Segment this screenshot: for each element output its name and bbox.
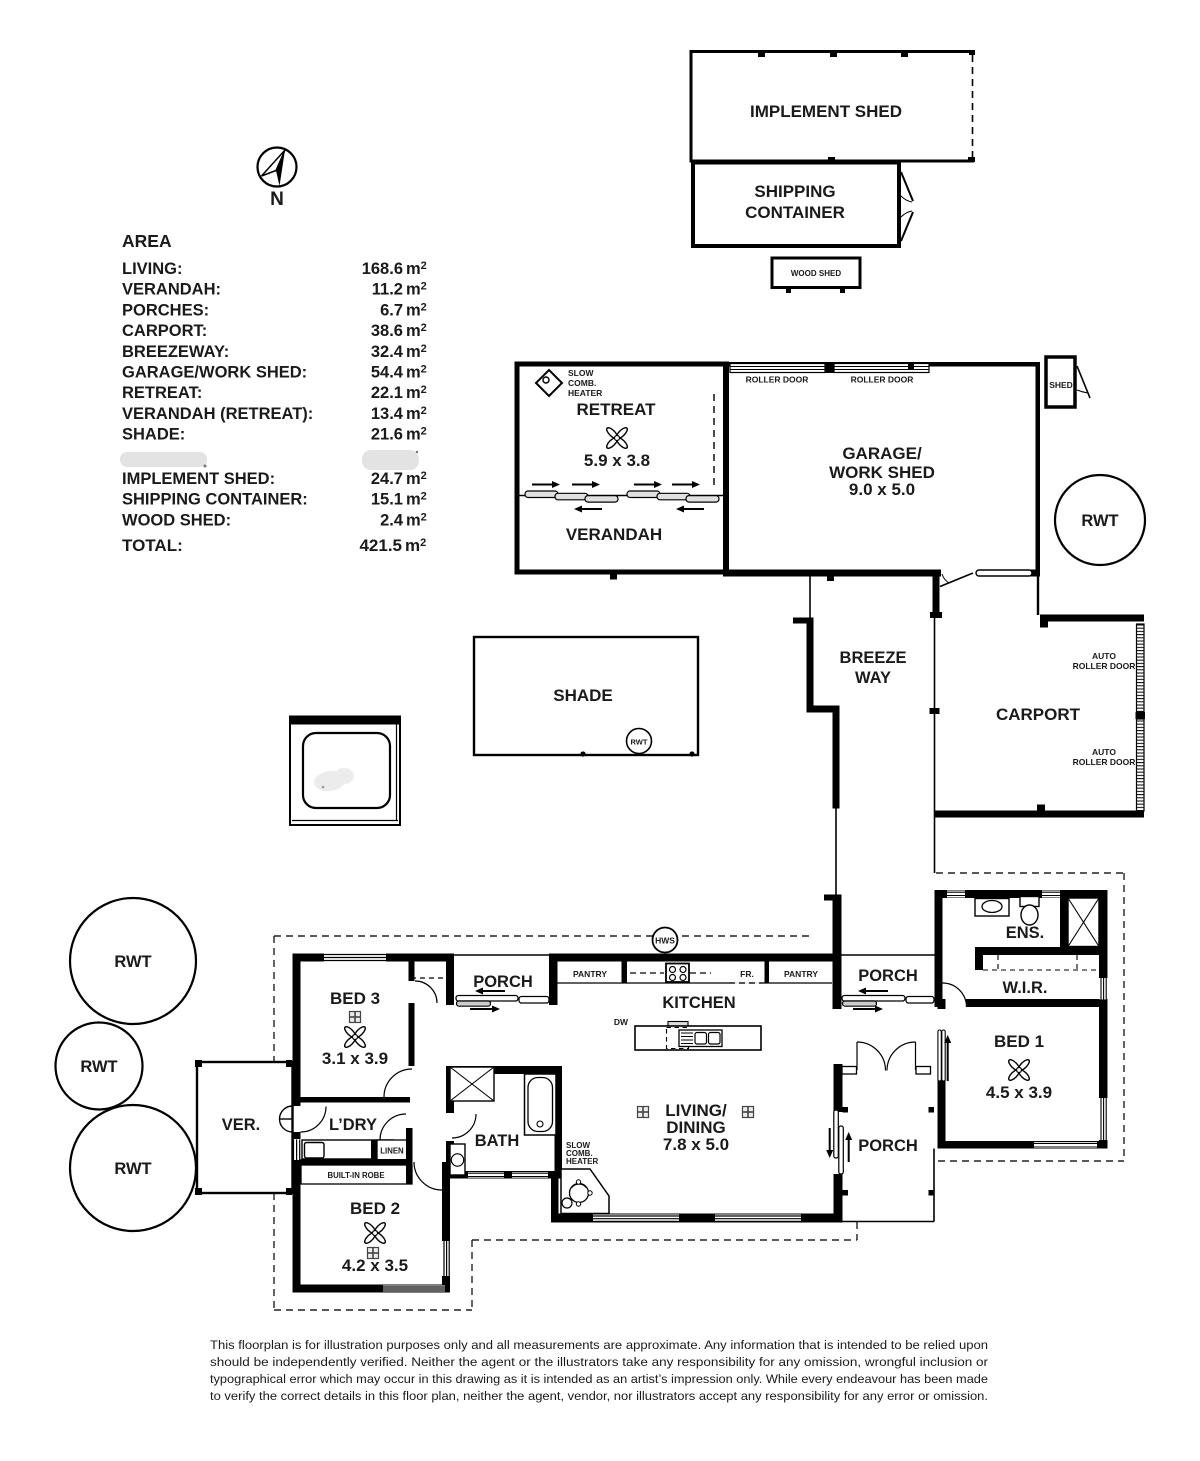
svg-text:typographical error which may: typographical error which may occur in t…: [210, 1372, 988, 1386]
svg-text:5.9 x 3.8: 5.9 x 3.8: [584, 451, 650, 470]
svg-text:BED 2: BED 2: [350, 1199, 400, 1218]
svg-text:32.4m2: 32.4m2: [371, 343, 427, 361]
svg-text:ROLLER DOOR: ROLLER DOOR: [1073, 757, 1136, 767]
svg-text:ROLLER DOOR: ROLLER DOOR: [1073, 661, 1136, 671]
svg-text:22.1m2: 22.1m2: [371, 384, 427, 402]
svg-text:AUTO: AUTO: [1092, 651, 1116, 661]
svg-text:BED 1: BED 1: [994, 1032, 1044, 1051]
svg-text:VERANDAH: VERANDAH: [566, 525, 662, 544]
svg-text:15.1m2: 15.1m2: [371, 491, 427, 509]
svg-text:should be independently verifi: should be independently verified. Neithe…: [210, 1355, 988, 1369]
svg-text:ROLLER DOOR: ROLLER DOOR: [851, 375, 914, 385]
svg-text:W.I.R.: W.I.R.: [1003, 979, 1048, 997]
svg-text:SHED: SHED: [1049, 380, 1073, 390]
svg-text:DW: DW: [614, 1017, 629, 1027]
svg-text:VERANDAH (RETREAT):: VERANDAH (RETREAT):: [122, 405, 313, 423]
svg-text:WOOD SHED: WOOD SHED: [791, 269, 841, 278]
svg-text:N: N: [270, 189, 284, 210]
svg-text:PANTRY: PANTRY: [784, 969, 818, 979]
svg-text:SLOW: SLOW: [568, 368, 594, 378]
svg-text:38.6m2: 38.6m2: [371, 322, 427, 340]
svg-text:RETREAT:: RETREAT:: [122, 384, 202, 402]
svg-text:4.2 x 3.5: 4.2 x 3.5: [342, 1256, 408, 1275]
svg-text:11.2m2: 11.2m2: [372, 281, 427, 299]
svg-text:SHADE:: SHADE:: [122, 426, 185, 444]
svg-text:RWT: RWT: [1081, 512, 1118, 530]
svg-text:HWS: HWS: [655, 936, 675, 946]
svg-text:PANTRY: PANTRY: [573, 969, 607, 979]
svg-text:VER.: VER.: [222, 1116, 261, 1134]
svg-text:SHIPPING: SHIPPING: [754, 182, 835, 201]
svg-text:7.8 x 5.0: 7.8 x 5.0: [663, 1135, 729, 1154]
svg-text:IMPLEMENT SHED: IMPLEMENT SHED: [750, 102, 902, 121]
svg-text:BUILT-IN ROBE: BUILT-IN ROBE: [327, 1171, 384, 1180]
svg-text:24.7m2: 24.7m2: [371, 470, 427, 488]
svg-text:ROLLER DOOR: ROLLER DOOR: [746, 375, 809, 385]
svg-text:This floorplan is for illustra: This floorplan is for illustration purpo…: [210, 1338, 988, 1352]
svg-text:PORCHES:: PORCHES:: [122, 301, 209, 319]
svg-text:WAY: WAY: [855, 669, 891, 687]
svg-text:BREEZEWAY:: BREEZEWAY:: [122, 343, 229, 361]
svg-text:GARAGE/: GARAGE/: [842, 444, 922, 463]
svg-text:54.4m2: 54.4m2: [371, 364, 427, 382]
svg-text:IMPLEMENT SHED:: IMPLEMENT SHED:: [122, 470, 275, 488]
svg-text:LIVING:: LIVING:: [122, 260, 183, 278]
svg-text:VERANDAH:: VERANDAH:: [122, 281, 221, 299]
svg-text:BATH: BATH: [475, 1132, 520, 1150]
svg-text:KITCHEN: KITCHEN: [662, 994, 735, 1012]
svg-text:RWT: RWT: [631, 738, 648, 747]
svg-text:BREEZE: BREEZE: [840, 649, 907, 667]
svg-text:HEATER: HEATER: [566, 1157, 599, 1166]
svg-text:TOTAL:: TOTAL:: [122, 536, 183, 555]
svg-text:RWT: RWT: [114, 1160, 151, 1178]
svg-text:SHIPPING CONTAINER:: SHIPPING CONTAINER:: [122, 491, 308, 509]
svg-text:4.5 x 3.9: 4.5 x 3.9: [986, 1083, 1052, 1102]
svg-text:9.0 x 5.0: 9.0 x 5.0: [849, 480, 915, 499]
svg-text:L’DRY: L’DRY: [329, 1116, 377, 1134]
svg-text:RWT: RWT: [114, 953, 151, 971]
svg-text:13.4m2: 13.4m2: [371, 405, 427, 423]
svg-text:421.5m2: 421.5m2: [359, 536, 426, 555]
svg-text:ENS.: ENS.: [1006, 924, 1045, 942]
svg-text:AUTO: AUTO: [1092, 747, 1116, 757]
svg-text:PORCH: PORCH: [858, 1137, 918, 1155]
svg-text:3.1 x 3.9: 3.1 x 3.9: [322, 1049, 388, 1068]
svg-text:RWT: RWT: [80, 1058, 117, 1076]
svg-text:HEATER: HEATER: [568, 388, 602, 398]
svg-text:SHADE: SHADE: [553, 686, 613, 705]
svg-text:PORCH: PORCH: [858, 967, 918, 985]
svg-text:BED 3: BED 3: [330, 989, 380, 1008]
svg-text:WOOD SHED:: WOOD SHED:: [122, 511, 231, 529]
svg-text:GARAGE/WORK SHED:: GARAGE/WORK SHED:: [122, 364, 307, 382]
svg-text:AREA: AREA: [122, 231, 172, 251]
svg-text:RETREAT: RETREAT: [576, 400, 656, 419]
svg-text:LINEN: LINEN: [380, 1147, 404, 1156]
svg-text:CARPORT: CARPORT: [996, 705, 1081, 724]
svg-text:CONTAINER: CONTAINER: [745, 203, 845, 222]
svg-text:168.6m2: 168.6m2: [362, 260, 427, 278]
svg-text:COMB.: COMB.: [568, 378, 596, 388]
svg-text:FR.: FR.: [740, 969, 754, 979]
svg-text:CARPORT:: CARPORT:: [122, 322, 207, 340]
svg-text:21.6m2: 21.6m2: [371, 426, 427, 444]
svg-text:to verify the correct details: to verify the correct details in this fl…: [210, 1389, 988, 1403]
